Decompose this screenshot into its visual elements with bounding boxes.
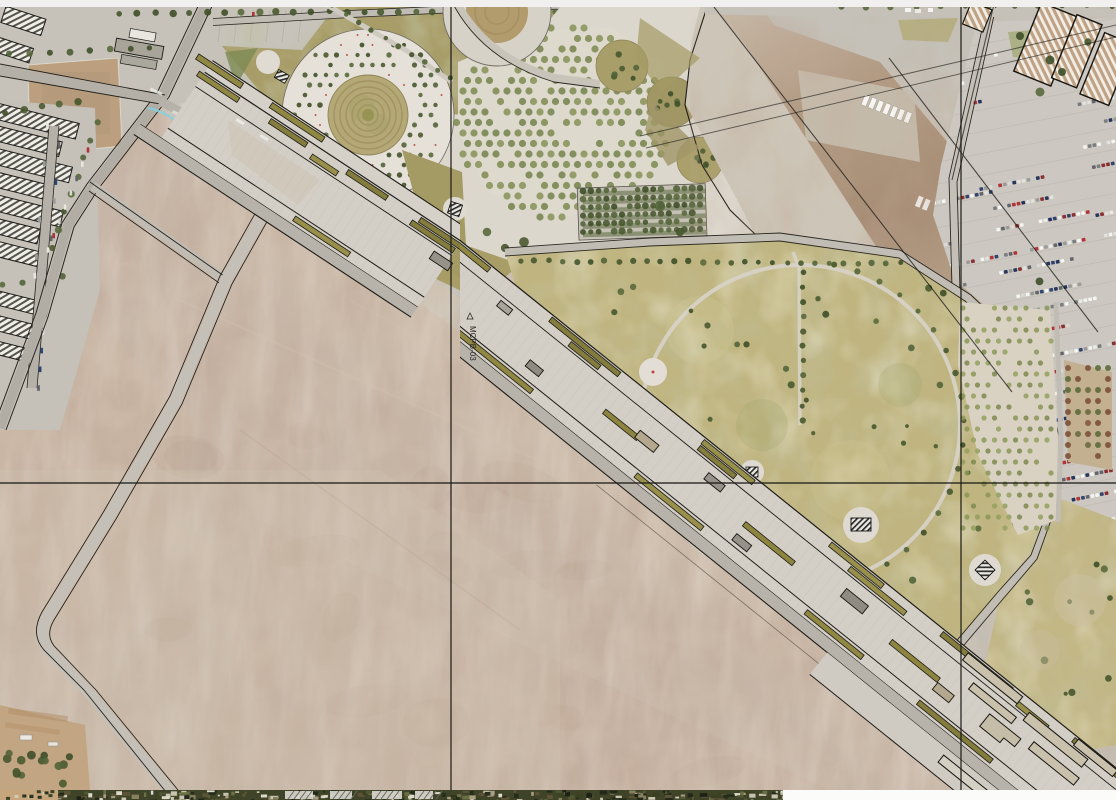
svg-text:MCPB-03: MCPB-03 xyxy=(468,326,477,361)
